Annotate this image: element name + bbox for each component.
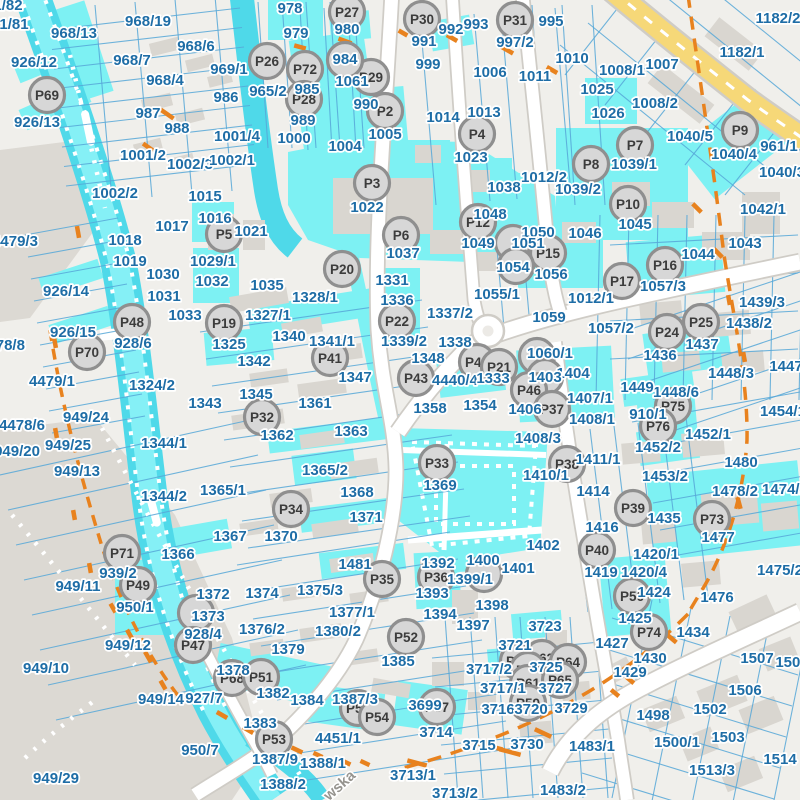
poi-marker-P69[interactable]: P69 xyxy=(30,78,65,113)
parcel-label: 1365/2 xyxy=(302,462,348,479)
parcel-label: 1002/1 xyxy=(209,152,255,169)
parcel-label: 1439/3 xyxy=(739,294,785,311)
poi-marker-label: P53 xyxy=(262,732,287,747)
parcel-label: 993 xyxy=(463,16,488,33)
parcel-label: 978 xyxy=(277,0,302,17)
poi-marker-label: P33 xyxy=(425,456,450,471)
parcel-label: 1040/5 xyxy=(667,128,713,145)
poi-marker-label: P40 xyxy=(585,543,609,558)
parcel-label: 1452/1 xyxy=(685,426,731,443)
parcel-label: 1476 xyxy=(700,589,733,606)
poi-marker-P39[interactable]: P39 xyxy=(616,491,651,526)
poi-marker-label: P22 xyxy=(385,314,409,329)
parcel-label: 1343 xyxy=(188,395,221,412)
parcel-label: 1477 xyxy=(701,529,734,546)
parcel-label: 968/19 xyxy=(125,13,171,30)
parcel-label: 1044 xyxy=(681,246,715,263)
parcel-label: 1055/1 xyxy=(474,286,520,303)
parcel-label: 4451/1 xyxy=(315,730,361,747)
parcel-label: 1016 xyxy=(198,210,231,227)
parcel-label: 992 xyxy=(438,21,463,38)
parcel-label: 965/2 xyxy=(249,83,287,100)
parcel-label: 1436 xyxy=(643,347,676,364)
parcel-label: 1379 xyxy=(271,641,304,658)
parcel-label: 1019 xyxy=(113,253,146,270)
poi-marker-label: P9 xyxy=(732,123,749,138)
poi-marker-label: P3 xyxy=(364,176,381,191)
parcel-label: 968/13 xyxy=(51,25,97,42)
parcel-label: 1182/2 xyxy=(755,10,800,27)
parcel-label: 1507 xyxy=(740,650,773,667)
parcel-label: 949/25 xyxy=(45,437,91,454)
parcel-label: 1424 xyxy=(637,584,671,601)
parcel-label: 3717/1 xyxy=(480,680,526,697)
parcel-label: 1474/1 xyxy=(762,481,800,498)
poi-marker-label: P25 xyxy=(689,315,714,330)
poi-marker-P4[interactable]: P4 xyxy=(460,117,495,152)
parcel-label: 1039/1 xyxy=(611,156,657,173)
parcel-label: 1049 xyxy=(461,235,494,252)
parcel-label: 3725 xyxy=(529,659,562,676)
parcel-label: 991 xyxy=(411,33,436,50)
parcel-label: 949/14 xyxy=(138,691,185,708)
poi-marker-label: P72 xyxy=(293,62,317,77)
poi-marker-P8[interactable]: P8 xyxy=(574,147,609,182)
parcel-label: 1014 xyxy=(426,109,460,126)
poi-marker-P52[interactable]: P52 xyxy=(389,620,424,655)
parcel-label: 1017 xyxy=(155,218,188,235)
parcel-label: 999 xyxy=(415,56,440,73)
parcel-label: 1045 xyxy=(618,216,651,233)
parcel-label: 995 xyxy=(538,13,563,30)
parcel-label: 1001/4 xyxy=(214,128,261,145)
parcel-label: 1010 xyxy=(555,50,588,67)
parcel-label: 1340 xyxy=(272,328,305,345)
parcel-label: 1042/1 xyxy=(740,201,786,218)
parcel-label: 1402 xyxy=(526,537,559,554)
parcel-label: 928/4 xyxy=(184,626,222,643)
parcel-label: 3721 xyxy=(498,637,531,654)
poi-marker-label: P31 xyxy=(503,13,528,28)
poi-marker-label: P27 xyxy=(335,5,359,20)
parcel-label: 1056 xyxy=(534,266,567,283)
parcel-label: 4478/6 xyxy=(0,417,45,434)
parcel-label: 949/13 xyxy=(54,463,100,480)
parcel-label: 1411/1 xyxy=(575,451,620,468)
parcel-label: 1021 xyxy=(234,223,267,240)
poi-marker-label: P8 xyxy=(583,157,600,172)
parcel-label: 1358 xyxy=(413,400,446,417)
parcel-label: 1367 xyxy=(213,528,246,545)
parcel-label: 4479/1 xyxy=(29,373,75,390)
parcel-label: 1345 xyxy=(239,386,272,403)
parcel-label: 949/10 xyxy=(23,660,69,677)
parcel-label: 1372 xyxy=(196,586,229,603)
parcel-label: 984 xyxy=(332,51,358,68)
parcel-label: 980 xyxy=(334,21,359,38)
parcel-label: 987 xyxy=(135,105,160,122)
parcel-label: 3723 xyxy=(528,618,561,635)
parcel-label: 1388/2 xyxy=(260,776,306,793)
poi-marker-label: P51 xyxy=(249,670,274,685)
parcel-label: 1007 xyxy=(645,56,678,73)
parcel-label: 1435 xyxy=(647,510,680,527)
poi-marker-P33[interactable]: P33 xyxy=(420,446,455,481)
parcel-label: 1419 xyxy=(584,564,617,581)
poi-marker-label: P54 xyxy=(365,710,390,725)
parcel-label: 1449 xyxy=(620,379,653,396)
parcel-label: 1410/1 xyxy=(523,467,569,484)
parcel-label: 1388/1 xyxy=(300,755,346,772)
parcel-label: 1333 xyxy=(476,370,509,387)
poi-marker-label: P16 xyxy=(653,258,678,273)
parcel-label: 1513/3 xyxy=(689,762,735,779)
parcel-label: 1407/1 xyxy=(567,390,613,407)
poi-marker-label: P19 xyxy=(212,316,236,331)
parcel-label: 1414 xyxy=(576,483,610,500)
poi-marker-label: P35 xyxy=(370,572,395,587)
parcel-label: 1400 xyxy=(466,552,499,569)
parcel-label: 950/7 xyxy=(181,742,219,759)
parcel-label: 1000 xyxy=(277,130,310,147)
parcel-label: 1408/1 xyxy=(569,411,615,428)
parcel-label: 1327/1 xyxy=(245,307,291,324)
parcel-label: 1371 xyxy=(349,509,382,526)
parcel-label: 1040/3 xyxy=(759,164,800,181)
parcel-label: 985 xyxy=(294,81,319,98)
parcel-label: 1366 xyxy=(161,546,194,563)
parcel-label: 3727 xyxy=(538,680,571,697)
parcel-label: 926/13 xyxy=(14,114,60,131)
parcel-label: 1370 xyxy=(264,528,297,545)
parcel-label: 1054 xyxy=(496,259,530,276)
parcel-label: 1025 xyxy=(580,81,613,98)
parcel-label: 1060/1 xyxy=(527,345,573,362)
poi-marker-label: P70 xyxy=(75,345,99,360)
parcel-label: 3717/2 xyxy=(466,661,512,678)
parcel-label: 1503 xyxy=(711,729,744,746)
poi-marker-label: P32 xyxy=(250,410,274,425)
parcel-label: 1002/3 xyxy=(167,156,213,173)
parcel-label: 1447 xyxy=(769,358,800,375)
parcel-label: 1348 xyxy=(411,350,444,367)
parcel-label: 1475/2 xyxy=(757,562,800,579)
parcel-label: 1032 xyxy=(195,273,228,290)
parcel-label: 1425 xyxy=(618,610,651,627)
parcel-label: 1429 xyxy=(613,664,646,681)
parcel-label: 1383 xyxy=(243,715,276,732)
parcel-label: 4440/4 xyxy=(432,372,479,389)
parcel-label: 4478/8 xyxy=(0,337,25,354)
parcel-label: 1008/1 xyxy=(599,62,645,79)
poi-marker-label: P36 xyxy=(424,570,449,585)
parcel-label: 928/6 xyxy=(114,335,152,352)
parcel-label: 1057/2 xyxy=(588,320,634,337)
poi-marker-label: P4 xyxy=(469,127,486,142)
parcel-label: 1337/2 xyxy=(427,305,473,322)
poi-marker-label: P7 xyxy=(627,138,644,153)
parcel-label: 1448/3 xyxy=(708,365,754,382)
poi-marker-P20[interactable]: P20 xyxy=(325,252,360,287)
poi-marker-P40[interactable]: P40 xyxy=(580,533,615,568)
parcel-label: 1031 xyxy=(147,288,180,305)
poi-marker-P9[interactable]: P9 xyxy=(723,113,758,148)
poi-marker-P3[interactable]: P3 xyxy=(355,166,390,201)
parcel-label: 3720 xyxy=(514,701,547,718)
poi-marker-label: P73 xyxy=(700,512,725,527)
poi-marker-P24[interactable]: P24 xyxy=(650,315,685,350)
parcel-label: 949/29 xyxy=(33,770,79,787)
parcel-label: 1/82 xyxy=(0,0,23,14)
parcel-label: 1399/1 xyxy=(447,571,493,588)
parcel-label: 1324/2 xyxy=(129,377,175,394)
poi-marker-label: P34 xyxy=(279,502,304,517)
parcel-label: 1420/1 xyxy=(633,546,679,563)
parcel-label: 950/1 xyxy=(116,599,154,616)
parcel-label: 1481 xyxy=(338,556,371,573)
parcel-label: 1397 xyxy=(456,617,489,634)
parcel-label: 4479/3 xyxy=(0,233,38,250)
parcel-label: 1478/2 xyxy=(712,483,758,500)
parcel-label: 949/12 xyxy=(105,637,151,654)
parcel-label: 927/7 xyxy=(185,690,223,707)
parcel-label: 1394 xyxy=(423,606,457,623)
poi-marker-label: P24 xyxy=(655,325,680,340)
poi-marker-P25[interactable]: P25 xyxy=(684,305,719,340)
parcel-label: 969/1 xyxy=(210,61,248,78)
parcel-label: 1398 xyxy=(475,597,508,614)
parcel-label: 989 xyxy=(290,112,315,129)
parcel-label: 3713/1 xyxy=(390,767,436,784)
parcel-label: 1416 xyxy=(585,519,618,536)
parcel-label: 1030 xyxy=(146,266,179,283)
parcel-label: 1061 xyxy=(335,73,368,90)
parcel-label: 1015 xyxy=(188,188,221,205)
parcel-label: 1039/2 xyxy=(555,181,601,198)
poi-marker-label: P52 xyxy=(394,630,418,645)
parcel-label: 1344/1 xyxy=(141,435,187,452)
parcel-label: 1051 xyxy=(511,235,544,252)
poi-marker-label: P10 xyxy=(616,197,640,212)
parcel-label: 1483/2 xyxy=(540,782,586,799)
parcel-label: 939/2 xyxy=(99,565,137,582)
parcel-label: 1453/2 xyxy=(642,468,688,485)
poi-marker-label: P37 xyxy=(540,402,564,417)
parcel-label: 1427 xyxy=(595,635,628,652)
parcel-label: 961/1 xyxy=(760,138,798,155)
poi-marker-label: P39 xyxy=(621,501,645,516)
parcel-label: 968/6 xyxy=(177,38,215,55)
parcel-label: 1401 xyxy=(501,560,534,577)
parcel-label: 997/2 xyxy=(496,34,534,51)
parcel-label: 1437 xyxy=(685,336,718,353)
parcel-label: 1508 xyxy=(775,654,800,671)
parcel-label: 1448/6 xyxy=(653,384,699,401)
parcel-label: 1374 xyxy=(245,585,279,602)
poi-marker-label: P41 xyxy=(318,351,343,366)
parcel-label: 926/14 xyxy=(43,283,90,300)
parcel-label: 1385 xyxy=(381,653,414,670)
parcel-label: 1376/2 xyxy=(239,621,285,638)
map-canvas[interactable]: P69P26P72P27P30P31P29P28P2P4P3P8P7P9P10P… xyxy=(0,0,800,800)
parcel-label: 1018 xyxy=(108,232,141,249)
parcel-label: 1342 xyxy=(237,353,270,370)
parcel-label: 1022 xyxy=(350,199,383,216)
parcel-label: 1392 xyxy=(421,555,454,572)
parcel-label: 1375/3 xyxy=(297,582,343,599)
parcel-label: 1013 xyxy=(467,104,500,121)
parcel-label: 1059 xyxy=(532,309,565,326)
parcel-label: 1434 xyxy=(676,624,710,641)
parcel-label: 1365/1 xyxy=(200,482,246,499)
parcel-label: 1/81 xyxy=(0,16,29,33)
parcel-label: 3715 xyxy=(462,737,495,754)
parcel-label: 1043 xyxy=(728,235,761,252)
parcel-label: 1038 xyxy=(487,179,520,196)
poi-marker-label: P17 xyxy=(610,274,634,289)
parcel-label: 1500/1 xyxy=(654,734,700,751)
poi-marker-label: P71 xyxy=(110,546,135,561)
poi-marker-label: P30 xyxy=(410,12,434,27)
parcel-label: 1483/1 xyxy=(569,738,615,755)
parcel-label: 3714 xyxy=(419,724,453,741)
poi-marker-label: P43 xyxy=(404,371,429,386)
parcel-label: 1057/3 xyxy=(640,278,686,295)
parcel-label: 1004 xyxy=(328,138,362,155)
parcel-label: 1498 xyxy=(636,707,669,724)
parcel-label: 1354 xyxy=(463,397,497,414)
parcel-label: 1378 xyxy=(216,662,249,679)
parcel-label: 3699 xyxy=(408,697,441,714)
parcel-label: 1502 xyxy=(693,701,726,718)
parcel-label: 1406 xyxy=(508,401,541,418)
parcel-label: 988 xyxy=(164,120,189,137)
parcel-label: 926/12 xyxy=(11,54,57,71)
parcel-label: 3729 xyxy=(554,700,587,717)
parcel-label: 1454/1 xyxy=(760,403,800,420)
parcel-label: 1387/9 xyxy=(252,751,298,768)
parcel-label: 949/20 xyxy=(0,443,40,460)
parcel-label: 1377/1 xyxy=(329,604,375,621)
parcel-label: 1001/2 xyxy=(120,147,166,164)
parcel-label: 1408/3 xyxy=(515,430,561,447)
parcel-label: 3713/2 xyxy=(432,785,478,800)
parcel-label: 1347 xyxy=(338,369,371,386)
parcel-label: 1420/4 xyxy=(621,564,668,581)
parcel-label: 910/1 xyxy=(629,406,667,423)
parcel-label: 1361 xyxy=(298,395,331,412)
parcel-label: 1006 xyxy=(473,64,506,81)
parcel-label: 949/11 xyxy=(55,578,100,595)
parcel-label: 1339/2 xyxy=(381,333,427,350)
parcel-label: 1023 xyxy=(454,149,487,166)
parcel-label: 1403 xyxy=(528,369,561,386)
poi-marker-label: P69 xyxy=(35,88,59,103)
parcel-label: 3716 xyxy=(481,701,514,718)
parcel-label: 1368 xyxy=(340,484,373,501)
parcel-label: 1008/2 xyxy=(632,95,678,112)
parcel-label: 1369 xyxy=(423,477,456,494)
parcel-label: 1328/1 xyxy=(292,289,338,306)
parcel-label: 1048 xyxy=(473,206,506,223)
poi-marker-label: P5 xyxy=(216,227,233,242)
poi-marker-label: P26 xyxy=(255,54,280,69)
parcel-label: 1046 xyxy=(568,225,601,242)
parcel-label: 1040/4 xyxy=(711,146,758,163)
parcel-label: 1438/2 xyxy=(726,315,772,332)
parcel-label: 1182/1 xyxy=(719,44,764,61)
parcel-label: 1341/1 xyxy=(309,333,355,350)
parcel-label: 1026 xyxy=(591,105,624,122)
parcel-label: 990 xyxy=(353,96,378,113)
parcel-label: 1373 xyxy=(191,608,224,625)
parcel-label: 986 xyxy=(213,89,238,106)
poi-marker-label: P2 xyxy=(377,104,394,119)
poi-marker-P30[interactable]: P30 xyxy=(405,2,440,37)
parcel-label: 1011 xyxy=(519,68,552,85)
parcel-label: 1033 xyxy=(168,307,201,324)
parcel-label: 979 xyxy=(283,25,308,42)
parcel-label: 1331 xyxy=(375,272,408,289)
parcel-label: 1012/1 xyxy=(568,290,614,307)
parcel-label: 1002/2 xyxy=(92,185,138,202)
parcel-label: 1387/3 xyxy=(332,691,378,708)
parcel-label: 1506 xyxy=(728,682,761,699)
parcel-label: 968/4 xyxy=(146,72,184,89)
parcel-label: 1362 xyxy=(260,427,293,444)
parcel-label: 1338 xyxy=(438,334,471,351)
parcel-label: 968/7 xyxy=(113,52,151,69)
poi-marker-label: P6 xyxy=(393,228,410,243)
parcel-label: 1514 xyxy=(763,751,797,768)
poi-marker-label: P48 xyxy=(120,315,145,330)
parcel-label: 1325 xyxy=(212,336,245,353)
parcel-label: 1037 xyxy=(386,245,419,262)
parcel-label: 926/15 xyxy=(50,324,96,341)
parcel-label: 1382 xyxy=(256,685,289,702)
parcel-label: 1336 xyxy=(380,292,413,309)
parcel-label: 1393 xyxy=(415,585,448,602)
parcel-label: 949/24 xyxy=(63,409,110,426)
parcel-label: 1363 xyxy=(334,423,367,440)
parcel-label: 1029/1 xyxy=(190,253,236,270)
parcel-label: 1380/2 xyxy=(315,623,361,640)
cadastral-map[interactable]: P69P26P72P27P30P31P29P28P2P4P3P8P7P9P10P… xyxy=(0,0,800,800)
parcel-label: 1035 xyxy=(250,277,283,294)
poi-marker-label: P20 xyxy=(330,262,354,277)
poi-marker-label: P74 xyxy=(637,625,662,640)
poi-marker-P26[interactable]: P26 xyxy=(250,44,285,79)
parcel-label: 1452/2 xyxy=(635,439,681,456)
poi-marker-P34[interactable]: P34 xyxy=(274,492,309,527)
poi-marker-P31[interactable]: P31 xyxy=(498,3,533,38)
parcel-label: 1344/2 xyxy=(141,488,187,505)
parcel-label: 3730 xyxy=(510,736,543,753)
parcel-label: 1005 xyxy=(368,126,401,143)
parcel-label: 1480 xyxy=(724,454,757,471)
parcel-label: 1384 xyxy=(290,692,324,709)
